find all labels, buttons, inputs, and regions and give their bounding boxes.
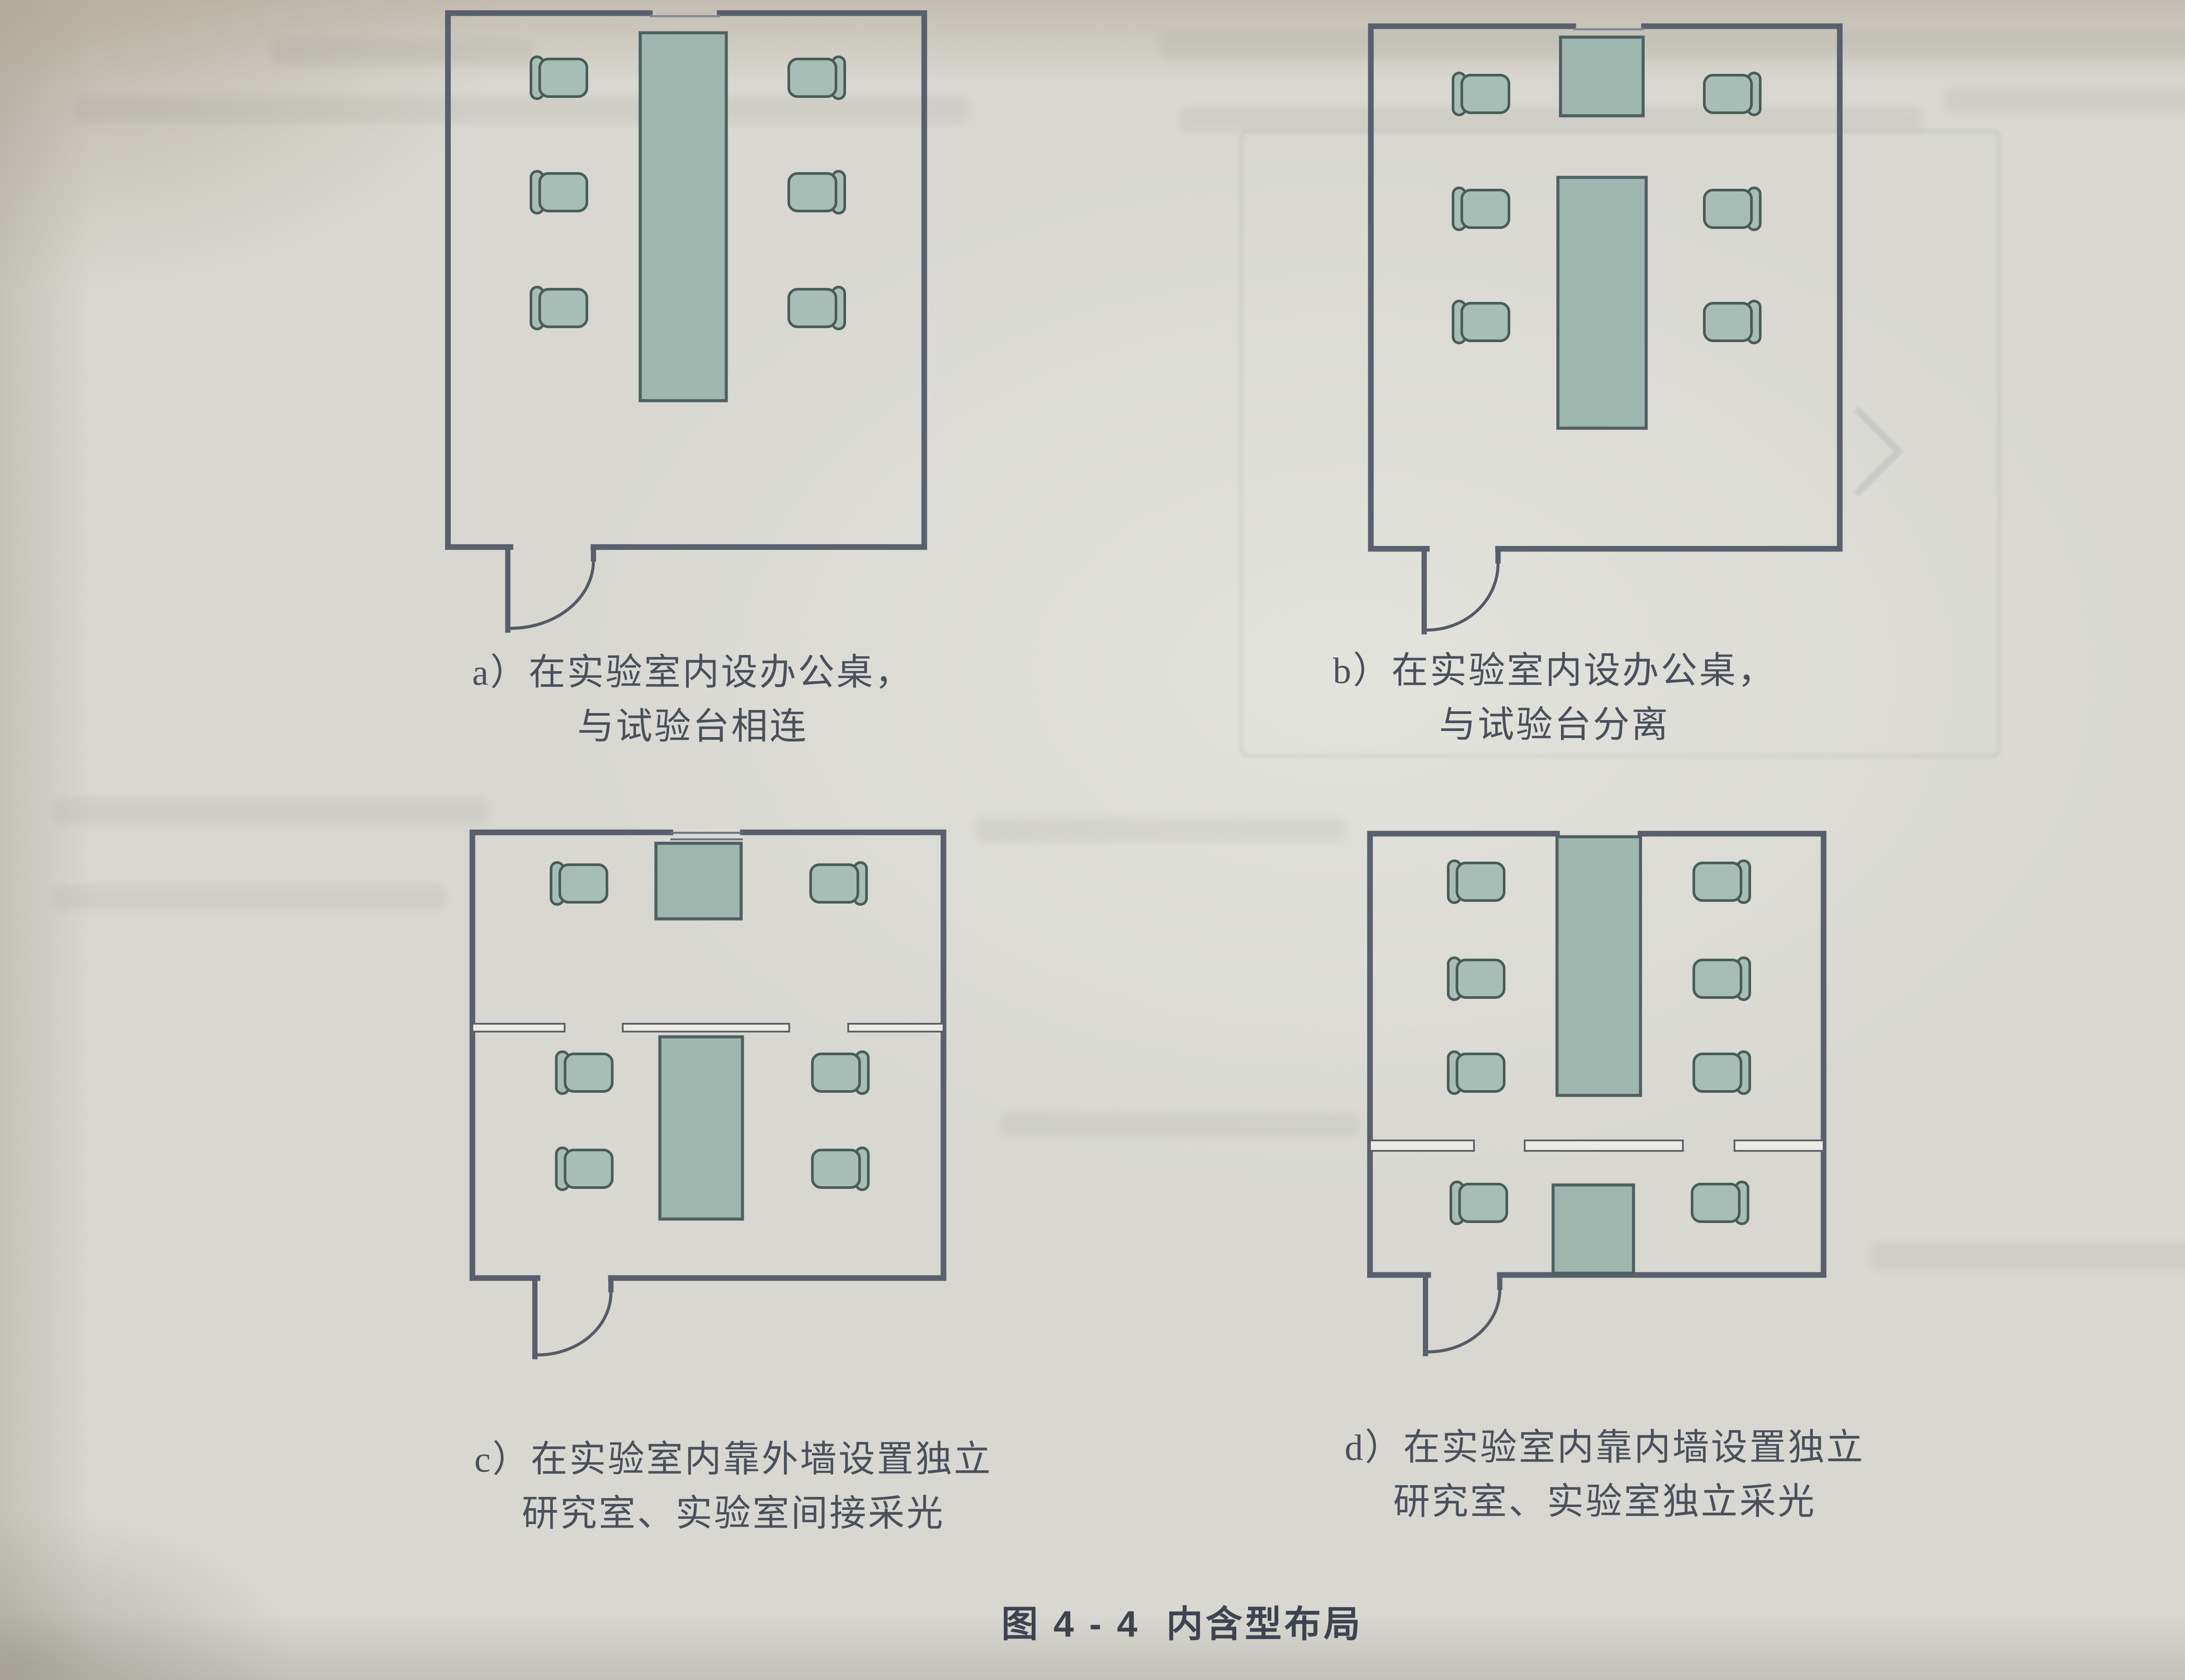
partition-wall (1525, 1140, 1683, 1151)
chair (531, 171, 587, 213)
office-desk (1553, 1185, 1634, 1273)
chair (1704, 188, 1760, 230)
chair (1704, 301, 1760, 343)
chair (1694, 1052, 1750, 1094)
door-swing-arc (510, 561, 593, 628)
plan-c (472, 832, 943, 1357)
caption-b-line2: 与试验台分离 (1161, 698, 1948, 752)
lab-bench (1558, 177, 1646, 428)
office-desk (1561, 37, 1643, 116)
figure-caption: 图 4 - 4内含型布局 (832, 1595, 1532, 1648)
door-swing-arc (538, 1292, 611, 1355)
partition-wall (472, 1024, 565, 1032)
chair (1694, 958, 1750, 1000)
chair (812, 1052, 868, 1094)
chair (1453, 188, 1509, 230)
chair (1692, 1182, 1748, 1224)
chair (1704, 73, 1760, 115)
chair (556, 1148, 612, 1190)
caption-a-line2: 与试验台相连 (299, 700, 1086, 754)
partition-wall (1734, 1140, 1824, 1151)
chair (551, 863, 607, 904)
caption-c-line1: c）在实验室内靠外墙设置独立 (340, 1433, 1127, 1487)
chair (1453, 73, 1509, 115)
chair (1451, 1182, 1507, 1224)
caption-b: b）在实验室内设办公桌， 与试验台分离 (1161, 644, 1948, 752)
chair (1448, 861, 1504, 903)
figure-title: 内含型布局 (1166, 1604, 1363, 1645)
door-swing-arc (1427, 564, 1498, 630)
caption-c-line2: 研究室、实验室间接采光 (340, 1487, 1127, 1541)
caption-d-line2: 研究室、实验室独立采光 (1211, 1475, 1998, 1529)
lab-bench (640, 33, 726, 401)
chair (1694, 861, 1750, 903)
figure-number: 图 4 - 4 (1001, 1604, 1140, 1645)
chair (531, 287, 587, 329)
chair (811, 863, 867, 904)
partition-wall (848, 1024, 943, 1032)
lab-bench (1557, 837, 1640, 1095)
plan-b (1371, 26, 1840, 632)
caption-a: a）在实验室内设办公桌， 与试验台相连 (299, 646, 1086, 754)
plan-d (1370, 834, 1824, 1354)
chair (789, 57, 845, 99)
caption-b-line1: b）在实验室内设办公桌， (1161, 644, 1948, 698)
lab-bench (660, 1037, 742, 1219)
plan-a (448, 13, 924, 630)
chair (812, 1148, 868, 1190)
chair (1453, 301, 1509, 343)
caption-a-line1: a）在实验室内设办公桌， (299, 646, 1086, 700)
chair (789, 171, 845, 213)
caption-d-line1: d）在实验室内靠内墙设置独立 (1211, 1421, 1998, 1475)
chair (1448, 1052, 1504, 1094)
book-page: a）在实验室内设办公桌， 与试验台相连 b）在实验室内设办公桌， 与试验台分离 … (0, 0, 2185, 1680)
office-desk (656, 843, 741, 919)
chair (1448, 958, 1504, 1000)
door-swing-arc (1428, 1290, 1500, 1352)
caption-c: c）在实验室内靠外墙设置独立 研究室、实验室间接采光 (340, 1433, 1127, 1541)
chair (531, 57, 587, 99)
chair (556, 1052, 612, 1094)
caption-d: d）在实验室内靠内墙设置独立 研究室、实验室独立采光 (1211, 1421, 1998, 1529)
partition-wall (1370, 1140, 1474, 1151)
partition-wall (623, 1024, 789, 1032)
chair (789, 287, 845, 329)
